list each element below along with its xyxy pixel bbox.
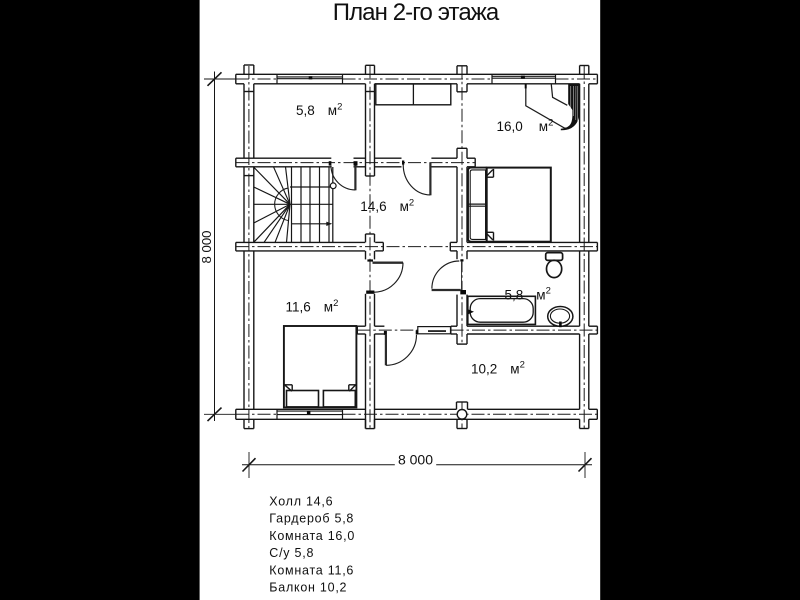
svg-text:Комната 16,0: Комната 16,0 [269,529,355,543]
svg-text:Комната 11,6: Комната 11,6 [269,563,354,577]
svg-text:Холл 14,6: Холл 14,6 [269,495,333,509]
svg-text:План 2-го этажа: План 2-го этажа [333,0,500,26]
svg-text:8 000: 8 000 [199,230,214,263]
svg-text:С/у 5,8: С/у 5,8 [269,546,314,560]
svg-text:Гардероб 5,8: Гардероб 5,8 [269,512,354,526]
svg-text:8 000: 8 000 [398,451,433,467]
svg-text:Балкон 10,2: Балкон 10,2 [269,581,347,595]
